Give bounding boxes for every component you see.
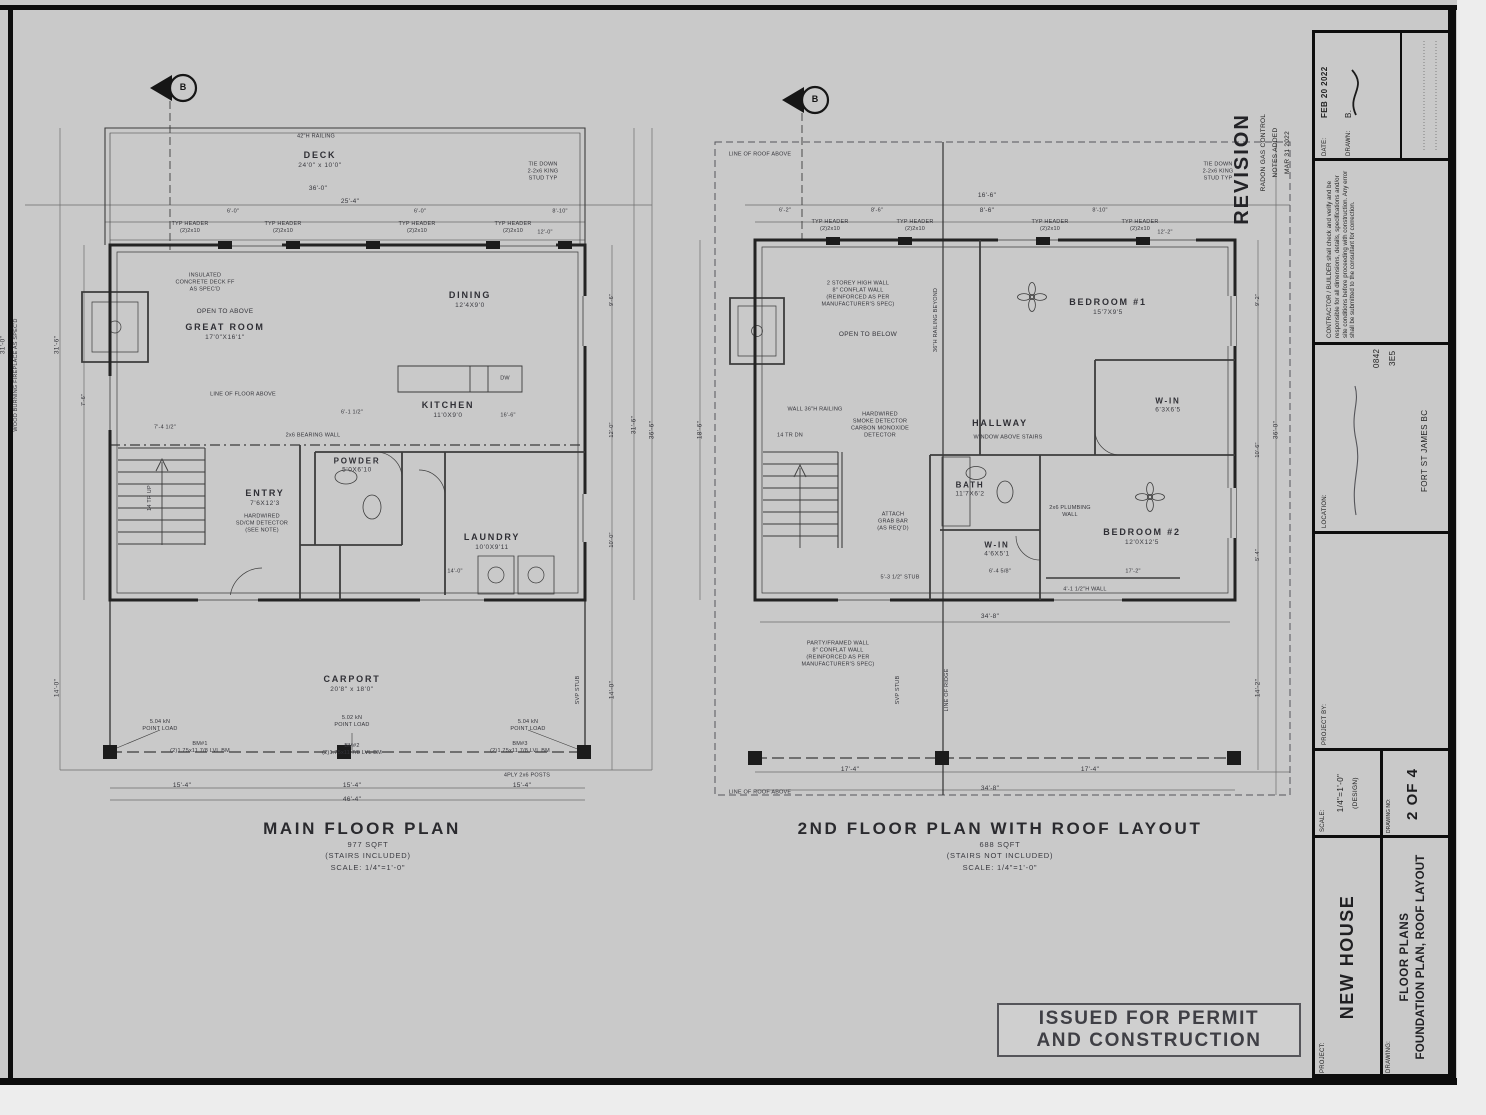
ceiling-fan-icon [1136, 483, 1165, 512]
room-name: BEDROOM #1 [1069, 297, 1147, 309]
svp-stub-note: SVP STUB [895, 676, 901, 705]
note-line: PARTY/FRAMED WALL [802, 641, 875, 648]
party-wall-note: PARTY/FRAMED WALL8" CONFLAT WALL(REINFOR… [802, 641, 875, 670]
note-line: GRAB BAR [877, 518, 908, 525]
dim-label: 17'-2" [1125, 568, 1140, 575]
dim-label: 9'-2" [1255, 294, 1261, 306]
plumbing-wall-note: 2x6 PLUMBINGWALL [1049, 505, 1091, 519]
dim-label: 36'-0" [1273, 421, 1280, 439]
note-line: (REINFORCED AS PER [802, 655, 875, 662]
room-label-dining: DINING12'4X9'0 [449, 290, 491, 310]
room-name: BATH [955, 481, 984, 491]
second-plan-scale: SCALE: 1/4"=1'-0" [963, 863, 1038, 873]
bearing-wall-note: 2x6 BEARING WALL [286, 432, 341, 439]
issued-stamp: ISSUED FOR PERMITAND CONSTRUCTION [997, 1003, 1301, 1057]
storey-wall-note: 2 STOREY HIGH WALL8" CONFLAT WALL(REINFO… [822, 281, 895, 310]
dim-label: 17'-4" [841, 766, 859, 774]
main-plan-stairs-note: (STAIRS INCLUDED) [325, 851, 411, 861]
note-line: TYP HEADER [264, 221, 301, 228]
drawn-value: B. [1344, 110, 1354, 118]
room-label-powder: POWDER5'0X6'10 [334, 457, 381, 476]
note-line: BM#3 [490, 741, 550, 748]
beam-label: BM#1(2)1.75x11 7/8 LVL BM [170, 741, 230, 755]
point-load-note: 5.02 kNPOINT LOAD [334, 715, 369, 729]
note-line: 5.04 kN [142, 719, 177, 726]
stair-direction-note: 14 TR UP [147, 485, 153, 511]
titleblock-divider [1312, 158, 1448, 161]
note-line: (2)1.75x11 7/8 LVL BM [322, 750, 382, 757]
room-label-bath: BATH11'7X6'2 [955, 481, 984, 500]
sheet-border-right [1448, 5, 1456, 1085]
stub-note: 5'-3 1/2" STUB [880, 574, 919, 581]
note-line: 2-2x6 KING [528, 168, 559, 175]
dim-label: 15'-4" [173, 782, 191, 790]
room-label-great-room: GREAT ROOM17'0"X16'1" [185, 322, 264, 342]
note-line: (2)2x10 [1031, 226, 1068, 233]
room-dims: 5'0X6'10 [334, 467, 381, 475]
dim-label: 34'-8" [981, 785, 999, 793]
smoke-detector-note: HARDWIREDSD/CM DETECTOR(SEE NOTE) [236, 513, 288, 534]
dim-label: 34'-8" [981, 613, 999, 621]
section-marker-label: B [812, 94, 819, 106]
second-plan-title: 2ND FLOOR PLAN WITH ROOF LAYOUT [798, 818, 1203, 840]
note-line: TYP HEADER [171, 221, 208, 228]
room-name: ENTRY [245, 488, 284, 500]
dim-label: 10'-0" [609, 532, 615, 547]
dim-label: 6'-0" [227, 208, 239, 215]
stamp-line: ISSUED FOR PERMIT [1039, 1008, 1259, 1030]
railing-beyond-note: 36"H RAILING BEYOND [933, 288, 939, 352]
point-load-note: 5.04 kNPOINT LOAD [510, 719, 545, 733]
room-name: DINING [449, 290, 491, 302]
typ-header-note: TYP HEADER(2)2x10 [494, 221, 531, 235]
note-line: 5.02 kN [334, 715, 369, 722]
dim-label: 8'-6" [871, 207, 883, 214]
dim-label: 46'-4" [343, 796, 361, 804]
grab-bar-note: ATTACHGRAB BAR(AS REQ'D) [877, 511, 908, 532]
room-dims: 12'4X9'0 [449, 302, 491, 310]
titleblock-divider [1312, 531, 1448, 534]
dim-label: 8'-10" [1092, 207, 1107, 214]
point-load-note: 5.04 kNPOINT LOAD [142, 719, 177, 733]
half-wall-note: 4'-1 1/2"H WALL [1063, 586, 1106, 593]
scale-note: (DESIGN) [1352, 755, 1360, 831]
second-plan-area: 688 SQFT [980, 840, 1021, 850]
project-by-label: PROJECT BY: [1322, 704, 1330, 745]
room-dims: 24'0" x 10'0" [298, 162, 341, 170]
typ-header-note: TYP HEADER(2)2x10 [171, 221, 208, 235]
room-label-walkin1: W-IN6'3X6'5 [1155, 397, 1180, 416]
wall-railing-note: WALL 36"H RAILING [787, 406, 842, 413]
drawing-value: FOUNDATION PLAN, ROOF LAYOUT [1414, 845, 1428, 1069]
dim-label: 5'-4" [1255, 549, 1261, 561]
note-line: (SEE NOTE) [236, 528, 288, 535]
note-line: TIE DOWN [528, 161, 559, 168]
section-marker-label: B [180, 82, 187, 94]
dim-label: 31'-6" [631, 416, 638, 434]
location-label: LOCATION: [1322, 494, 1330, 528]
railing-note: 42"H RAILING [297, 133, 335, 140]
room-name: CARPORT [323, 674, 380, 686]
room-dims: 6'3X6'5 [1155, 407, 1180, 415]
typ-header-note: TYP HEADER(2)2x10 [896, 219, 933, 233]
main-plan-scale: SCALE: 1/4"=1'-0" [331, 863, 406, 873]
note-line: (2)2x10 [811, 226, 848, 233]
revision-title: REVISION [1230, 50, 1255, 288]
note-line: HARDWIRED [851, 412, 909, 419]
ceiling-fan-icon [1018, 283, 1047, 312]
room-label-entry: ENTRY7'6X12'3 [245, 488, 284, 508]
note-line: (AS REQ'D) [877, 526, 908, 533]
dim-label: 31'-6" [54, 336, 61, 354]
dim-label: 6'-1 1/2" [341, 409, 363, 416]
room-label-carport: CARPORT20'8" x 18'0" [323, 674, 380, 694]
note-line: BM#1 [170, 741, 230, 748]
scale-value: 1/4"=1'-0" [1336, 755, 1346, 831]
sheet-border-left [8, 5, 13, 1083]
room-dims: 11'0X9'0 [422, 412, 475, 420]
note-line: (2)2x10 [398, 228, 435, 235]
dim-label: 18'-6" [697, 421, 704, 439]
dim-label: 7'-6" [81, 394, 87, 406]
typ-header-note: TYP HEADER(2)2x10 [264, 221, 301, 235]
note-line: TYP HEADER [811, 219, 848, 226]
dim-label: 8'-6" [980, 207, 994, 215]
designer-info-text [1424, 40, 1436, 150]
dim-label: 6'-2" [779, 207, 791, 214]
location-line: FORT ST JAMES BC [1420, 372, 1430, 492]
project-label: PROJECT: [1320, 1042, 1328, 1073]
drawn-label: DRAWN: [1346, 131, 1354, 156]
titleblock-divider [1312, 342, 1448, 345]
dimension-lines [25, 128, 1290, 800]
note-line: TYP HEADER [494, 221, 531, 228]
note-line: STUD TYP [528, 176, 559, 183]
note-line: 5.04 kN [510, 719, 545, 726]
room-name: POWDER [334, 457, 381, 467]
dim-label: 14'-0" [54, 679, 61, 697]
room-name: DECK [298, 150, 341, 162]
dim-label: 16'-6" [500, 412, 515, 419]
room-dims: 17'0"X16'1" [185, 334, 264, 342]
tie-down-note: TIE DOWN2-2x6 KINGSTUD TYP [1203, 161, 1234, 182]
main-plan-title: MAIN FLOOR PLAN [263, 818, 461, 840]
dim-label: 17'-4" [1081, 766, 1099, 774]
note-line: MANUFACTURER'S SPEC) [822, 302, 895, 309]
room-name: BEDROOM #2 [1103, 527, 1181, 539]
room-label-laundry: LAUNDRY10'0X9'11 [464, 532, 520, 552]
note-line: TIE DOWN [1203, 161, 1234, 168]
room-label-bedroom2: BEDROOM #212'0X12'5 [1103, 527, 1181, 547]
room-name: W-IN [1155, 397, 1180, 407]
note-line: WALL [1049, 512, 1091, 519]
room-dims: 11'7X6'2 [955, 491, 984, 499]
note-line: 8" CONFLAT WALL [802, 648, 875, 655]
room-name: LAUNDRY [464, 532, 520, 544]
second-plan-stairs-note: (STAIRS NOT INCLUDED) [947, 851, 1054, 861]
scale-label: SCALE: [1320, 809, 1328, 832]
dim-label: 15'-4" [513, 782, 531, 790]
note-line: AS SPEC'D [175, 287, 234, 294]
drawing-value: FLOOR PLANS [1398, 845, 1412, 1069]
revision-line: NOTES ADDED [1272, 60, 1280, 245]
note-line: POINT LOAD [510, 726, 545, 733]
dim-label: 6'-0" [414, 208, 426, 215]
open-below-note: OPEN TO BELOW [839, 331, 897, 339]
typ-header-note: TYP HEADER(2)2x10 [811, 219, 848, 233]
note-line: TYP HEADER [1121, 219, 1158, 226]
date-value: FEB 20 2022 [1320, 66, 1330, 118]
room-dims: 20'8" x 18'0" [323, 686, 380, 694]
typ-header-note: TYP HEADER(2)2x10 [1031, 219, 1068, 233]
dim-label: 12'-2" [1157, 229, 1172, 236]
roof-line-note: LINE OF ROOF ABOVE [729, 789, 792, 796]
project-value: NEW HOUSE [1336, 845, 1359, 1069]
note-line: SD/CM DETECTOR [236, 520, 288, 527]
room-name: W-IN [984, 541, 1009, 551]
note-line: POINT LOAD [142, 726, 177, 733]
typ-header-note: TYP HEADER(2)2x10 [1121, 219, 1158, 233]
note-line: SMOKE DETECTOR [851, 419, 909, 426]
note-line: DETECTOR [851, 433, 909, 440]
room-dims: 12'0X12'5 [1103, 539, 1181, 547]
dim-label: 14'-0" [609, 681, 616, 699]
note-line: INSULATED [175, 272, 234, 279]
room-label-deck: DECK24'0" x 10'0" [298, 150, 341, 170]
note-line: (2)1.75x11 7/8 LVL BM [490, 748, 550, 755]
room-name: GREAT ROOM [185, 322, 264, 334]
stamp-line: AND CONSTRUCTION [1036, 1030, 1261, 1052]
titleblock-border [1312, 30, 1315, 1078]
drawing-no-label: DRAWING NO: [1386, 799, 1392, 833]
note-line: 8" CONFLAT WALL [822, 288, 895, 295]
room-label-bedroom1: BEDROOM #115'7X9'5 [1069, 297, 1147, 317]
note-line: (2)2x10 [171, 228, 208, 235]
dim-label: 16'-6" [978, 192, 996, 200]
room-dims: 4'6X5'1 [984, 551, 1009, 559]
note-line: TYP HEADER [398, 221, 435, 228]
room-label-hallway: HALLWAY [972, 418, 1028, 430]
revision-line: RADON GAS CONTROL [1260, 60, 1268, 245]
note-line: (2)2x10 [494, 228, 531, 235]
typ-header-note: TYP HEADER(2)2x10 [398, 221, 435, 235]
contractor-note: CONTRACTOR / BUILDER shall check and ver… [1326, 166, 1357, 338]
note-line: HARDWIRED [236, 513, 288, 520]
smoke-detector-note: HARDWIREDSMOKE DETECTORCARBON MONOXIDEDE… [851, 412, 909, 441]
dim-label: 14'-0" [447, 568, 462, 575]
note-line: BM#2 [322, 743, 382, 750]
note-line: CONCRETE DECK FF [175, 279, 234, 286]
dim-label: 7'-4 1/2" [154, 424, 176, 431]
beam-label: BM#2(2)1.75x11 7/8 LVL BM [322, 743, 382, 757]
open-above-note: OPEN TO ABOVE [197, 308, 254, 316]
sheet-border-top [0, 5, 1457, 10]
room-name: KITCHEN [422, 400, 475, 412]
section-marker-icon [150, 75, 828, 113]
dim-label: 9'-6" [609, 294, 615, 306]
second-plan-headers [748, 237, 1241, 765]
note-line: CARBON MONOXIDE [851, 426, 909, 433]
stair-direction-note: 14 TR DN [777, 432, 803, 439]
sheet-border-bottom [0, 1078, 1457, 1085]
location-line: 0842 [1372, 349, 1382, 368]
dim-label: 36'-0" [309, 185, 327, 193]
dim-label: 8'-10" [552, 208, 567, 215]
dim-label: 10'-6" [1255, 442, 1261, 457]
note-line: (REINFORCED AS PER [822, 295, 895, 302]
deck-slab-note: INSULATEDCONCRETE DECK FFAS SPEC'D [175, 272, 234, 293]
window-above-note: WINDOW ABOVE STAIRS [973, 434, 1042, 441]
dim-label: 6'-4 5/8" [989, 568, 1011, 575]
beam-label: BM#3(2)1.75x11 7/8 LVL BM [490, 741, 550, 755]
room-label-kitchen: KITCHEN11'0X9'0 [422, 400, 475, 420]
note-line: MANUFACTURER'S SPEC) [802, 662, 875, 669]
posts-note: 4PLY 2x6 POSTS [504, 772, 550, 779]
dim-label: 31'-0" [0, 336, 7, 354]
revision-line: MAR 31 2022 [1284, 60, 1292, 245]
dim-label: 12'-0" [537, 229, 552, 236]
dim-label: 36'-6" [649, 421, 656, 439]
note-line: (2)2x10 [1121, 226, 1158, 233]
titleblock-divider [1400, 30, 1402, 161]
titleblock-border [1312, 30, 1448, 33]
note-line: 2 STOREY HIGH WALL [822, 281, 895, 288]
tie-down-note: TIE DOWN2-2x6 KINGSTUD TYP [528, 161, 559, 182]
dim-label: 25'-4" [341, 198, 359, 206]
svp-stub-note: SVP STUB [575, 676, 581, 705]
note-line: TYP HEADER [896, 219, 933, 226]
main-plan-area: 977 SQFT [348, 840, 389, 850]
dishwasher-label: DW [500, 375, 510, 382]
note-line: POINT LOAD [334, 722, 369, 729]
dim-label: 14'-2" [1255, 679, 1262, 697]
room-dims: 15'7X9'5 [1069, 309, 1147, 317]
drawing-label: DRAWING: [1386, 1041, 1394, 1073]
note-line: (2)1.75x11 7/8 LVL BM [170, 748, 230, 755]
drawing-no-value: 2 OF 4 [1404, 757, 1423, 831]
note-line: ATTACH [877, 511, 908, 518]
note-line: (2)2x10 [264, 228, 301, 235]
drawing-sheet: B DECK24'0" x 10'0" 42"H RAILING 36'-0" … [0, 0, 1486, 1115]
dim-label: 12'-0" [609, 422, 615, 437]
note-line: STUD TYP [1203, 176, 1234, 183]
date-label: DATE: [1322, 138, 1330, 156]
fireplace-note: WOOD BURNING FIREPLACE AS SPEC'D [13, 318, 19, 431]
note-line: 2-2x6 KING [1203, 168, 1234, 175]
note-line: 2x6 PLUMBING [1049, 505, 1091, 512]
ridge-line-note: LINE OF RIDGE [944, 669, 950, 712]
titleblock-divider [1380, 748, 1383, 1078]
roof-line-note: LINE OF ROOF ABOVE [729, 151, 792, 158]
dim-label: 15'-4" [343, 782, 361, 790]
room-dims: 10'0X9'11 [464, 544, 520, 552]
room-label-walkin2: W-IN4'6X5'1 [984, 541, 1009, 560]
room-dims: 7'6X12'3 [245, 500, 284, 508]
note-line: TYP HEADER [1031, 219, 1068, 226]
location-line: 3E5 [1388, 351, 1398, 366]
line-of-floor-note: LINE OF FLOOR ABOVE [210, 391, 276, 398]
note-line: (2)2x10 [896, 226, 933, 233]
